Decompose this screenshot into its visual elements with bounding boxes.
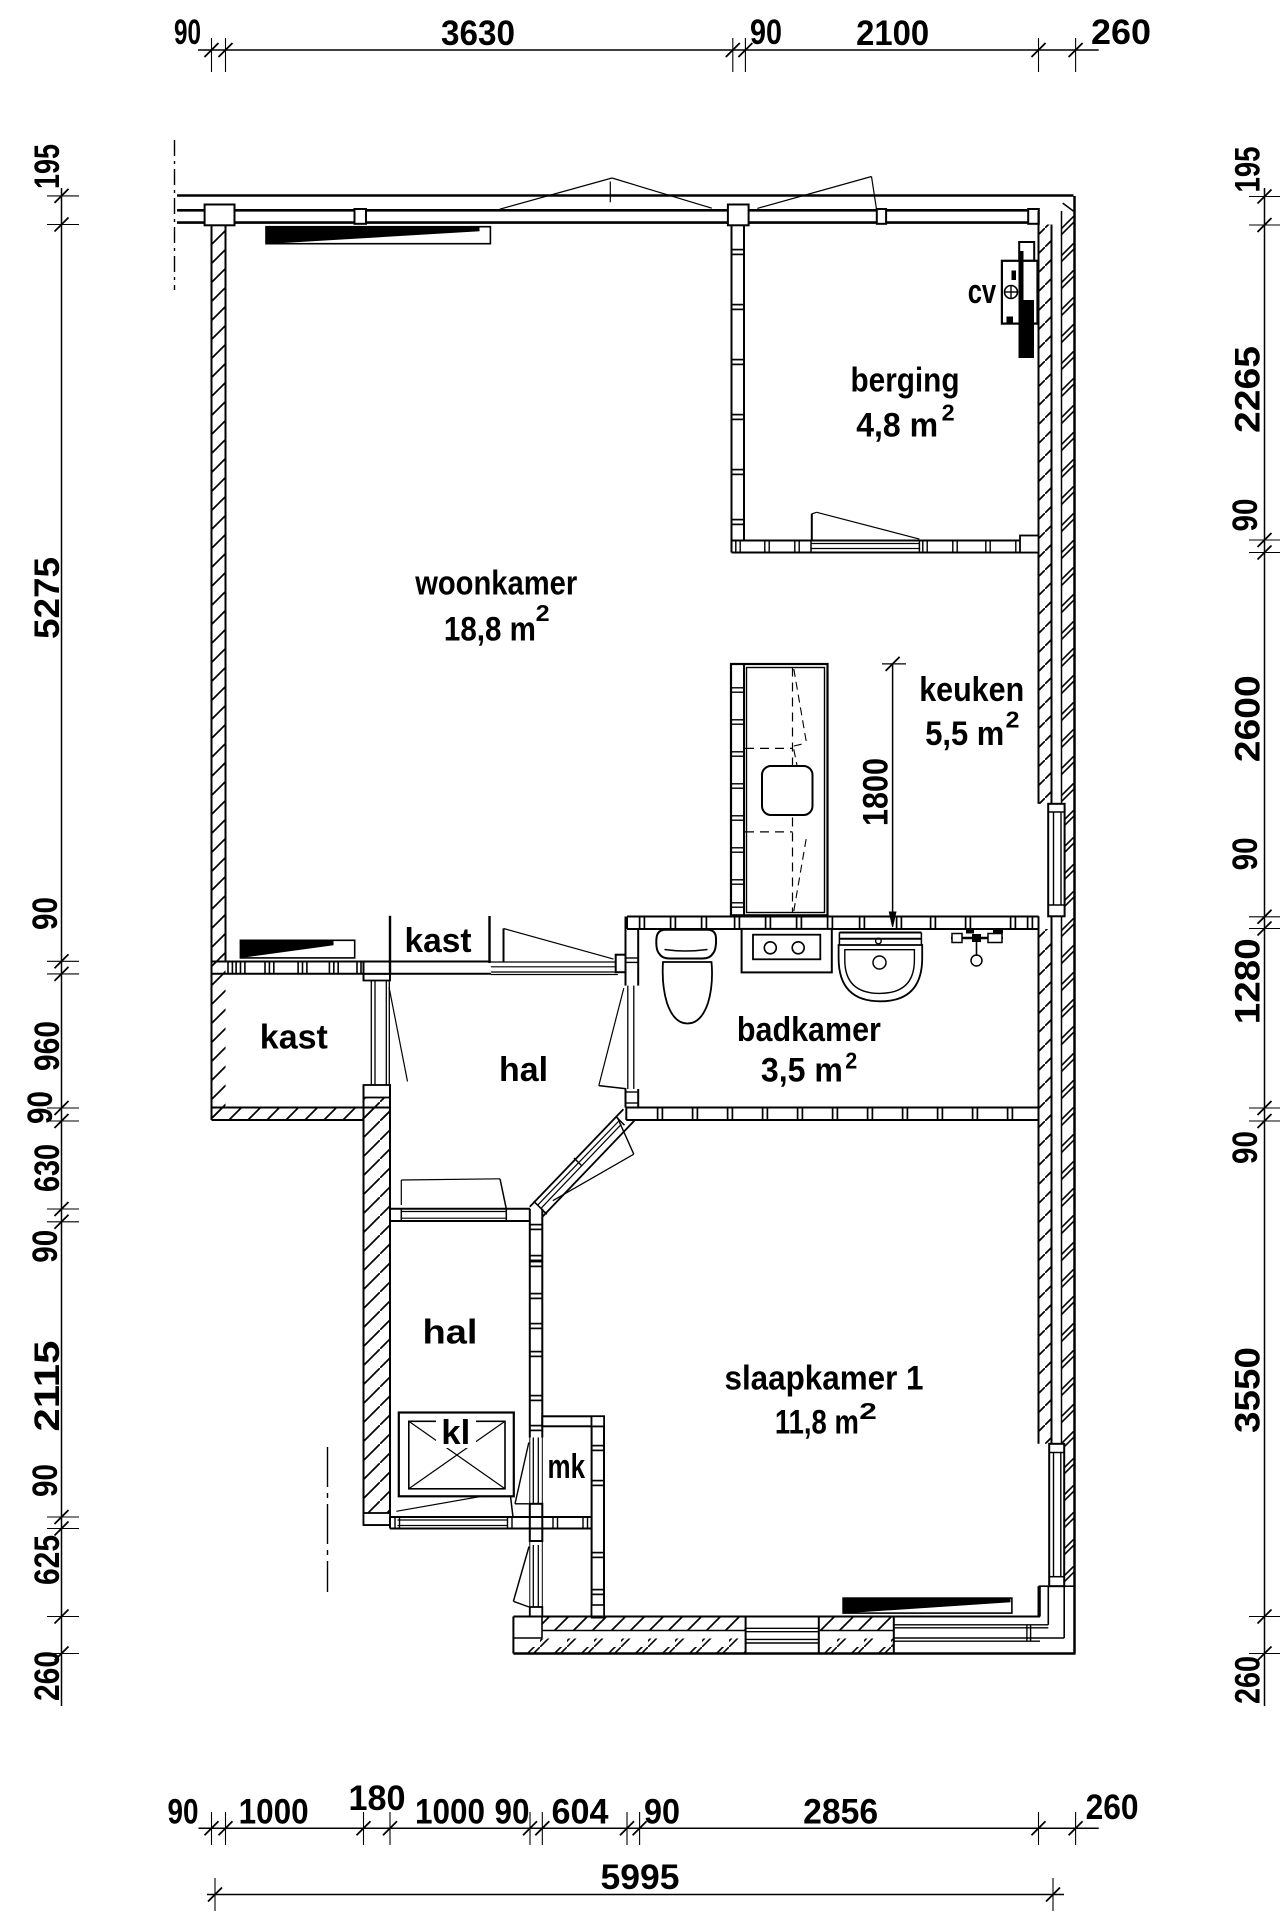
svg-text:625: 625 [28,1535,67,1585]
svg-text:2856: 2856 [803,1793,878,1832]
svg-text:260: 260 [1086,1788,1139,1827]
svg-text:4,8 m: 4,8 m [856,406,938,444]
svg-text:2265: 2265 [1229,346,1268,433]
svg-text:260: 260 [1229,1656,1268,1704]
svg-text:badkamer: badkamer [737,1011,881,1049]
svg-text:90: 90 [174,13,201,52]
svg-text:hal: hal [499,1051,548,1089]
svg-text:18,8 m: 18,8 m [444,611,536,649]
svg-text:90: 90 [26,1464,65,1497]
svg-text:90: 90 [750,13,782,52]
svg-text:2: 2 [536,600,550,626]
svg-text:kast: kast [260,1019,328,1057]
svg-text:90: 90 [21,1091,60,1124]
svg-text:1000: 1000 [239,1793,309,1832]
svg-text:3550: 3550 [1229,1347,1268,1433]
svg-text:90: 90 [1226,499,1265,532]
svg-text:mk: mk [548,1448,586,1486]
svg-text:3,5 m: 3,5 m [761,1052,843,1090]
svg-text:1800: 1800 [857,758,896,826]
svg-text:1280: 1280 [1229,938,1268,1024]
svg-text:195: 195 [1229,147,1268,193]
svg-text:180: 180 [349,1779,406,1818]
svg-text:kast: kast [405,922,472,960]
svg-text:90: 90 [1226,1131,1265,1164]
svg-text:90: 90 [26,1230,65,1263]
svg-text:90: 90 [495,1793,530,1832]
svg-text:1000: 1000 [415,1793,485,1832]
svg-text:3630: 3630 [441,14,515,53]
svg-text:2: 2 [859,1398,877,1424]
svg-text:604: 604 [552,1793,610,1832]
svg-text:woonkamer: woonkamer [414,565,577,603]
svg-text:cv: cv [968,273,997,311]
svg-text:2: 2 [845,1047,857,1073]
svg-text:kl: kl [441,1414,470,1452]
svg-text:960: 960 [28,1021,67,1071]
svg-text:2: 2 [1006,707,1020,733]
svg-text:630: 630 [28,1144,67,1192]
svg-text:90: 90 [1226,837,1265,870]
svg-text:2115: 2115 [28,1341,67,1432]
svg-text:90: 90 [26,897,65,930]
svg-text:hal: hal [423,1314,478,1352]
svg-text:keuken: keuken [919,671,1024,709]
svg-text:2100: 2100 [856,14,929,53]
svg-text:260: 260 [28,1651,67,1701]
svg-text:slaapkamer 1: slaapkamer 1 [725,1360,924,1398]
svg-text:2: 2 [942,400,955,426]
svg-text:195: 195 [28,144,67,189]
svg-text:5275: 5275 [28,557,67,639]
svg-text:5995: 5995 [601,1858,680,1897]
svg-text:90: 90 [644,1793,680,1832]
svg-text:11,8 m: 11,8 m [775,1404,859,1442]
svg-text:90: 90 [168,1793,199,1832]
svg-text:5,5 m: 5,5 m [925,715,1004,753]
svg-text:berging: berging [851,362,960,400]
svg-text:260: 260 [1091,13,1151,52]
svg-text:2600: 2600 [1229,675,1268,762]
